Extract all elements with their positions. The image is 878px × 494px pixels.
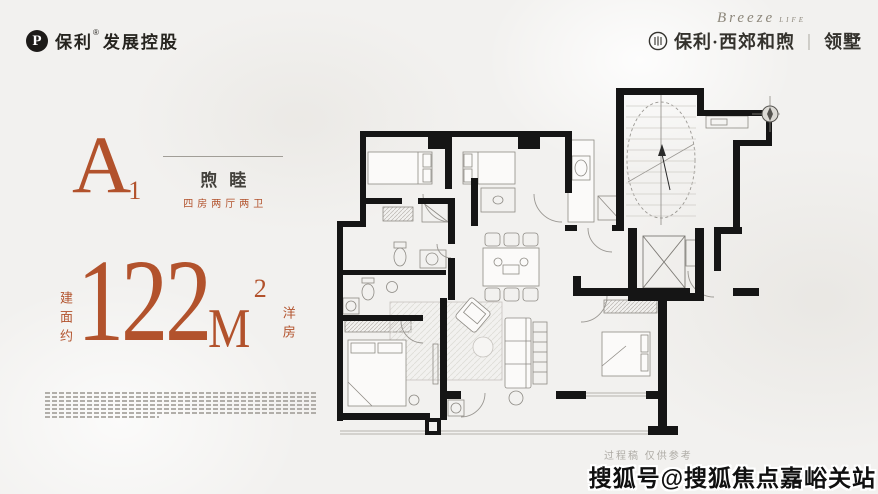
unit-letter: A [72, 124, 131, 210]
disclaimer-line [45, 392, 317, 394]
disclaimer-line [45, 416, 159, 418]
disclaimer-line [45, 408, 317, 410]
registered-mark: ® [93, 28, 101, 37]
unit-rule-line [163, 156, 283, 157]
bedroom-right [602, 332, 650, 376]
developer-logo-text: 保利®发展控股 [55, 28, 179, 53]
living-room [390, 297, 547, 405]
balcony-ac-unit [448, 400, 464, 416]
unit-name: 煦睦 [163, 166, 283, 191]
sohu-watermark: 搜狐号@搜狐焦点嘉峪关站 [589, 459, 876, 493]
disclaimer-line [45, 400, 317, 402]
bedroom-top-middle [463, 152, 515, 212]
staircase [626, 95, 696, 225]
bay-window-sill [706, 116, 748, 128]
disclaimer-fine-print [45, 392, 317, 420]
area-value: 122 [77, 246, 209, 356]
unit-letter-sub: 1 [128, 176, 141, 206]
project-name-line: 保利·西郊和煦 ｜ 领墅 [648, 28, 862, 54]
area-unit: M [208, 304, 250, 354]
disclaimer-line [45, 396, 317, 398]
project-seal-icon [648, 31, 668, 51]
developer-logo: P 保利®发展控股 [26, 28, 179, 53]
brand-suffix: 发展控股 [103, 33, 179, 52]
disclaimer-line [45, 404, 317, 406]
elevator [643, 236, 685, 288]
area-prefix-vertical: 建面约 [56, 291, 75, 348]
product-line-name: 领墅 [824, 28, 862, 54]
project-name: 保利·西郊和煦 [674, 28, 795, 54]
script-word: Breeze [717, 10, 775, 26]
poly-p-icon: P [26, 30, 48, 52]
unit-layout: 四房两厅两卫 [163, 195, 283, 210]
disclaimer-line [45, 412, 317, 414]
unit-code-block: A 1 煦睦 四房两厅两卫 [72, 124, 283, 210]
area-suffix-vertical: 洋房 [279, 306, 298, 344]
bathroom-lower [343, 278, 398, 314]
floor-plan [330, 82, 780, 462]
project-script-line: BreezeLIFE [717, 10, 806, 27]
area-block: 建面约 122 M 2 洋房 [56, 236, 298, 356]
bedroom-top-left [368, 152, 432, 184]
script-small-word: LIFE [779, 16, 806, 24]
project-logo: BreezeLIFE 保利·西郊和煦 ｜ 领墅 [648, 10, 862, 54]
unit-meta: 煦睦 四房两厅两卫 [163, 124, 283, 210]
dining-set [483, 233, 539, 301]
logo-divider: ｜ [801, 29, 818, 53]
kitchen [568, 140, 620, 222]
area-exponent: 2 [254, 276, 267, 302]
brand-name: 保利 [55, 33, 93, 52]
